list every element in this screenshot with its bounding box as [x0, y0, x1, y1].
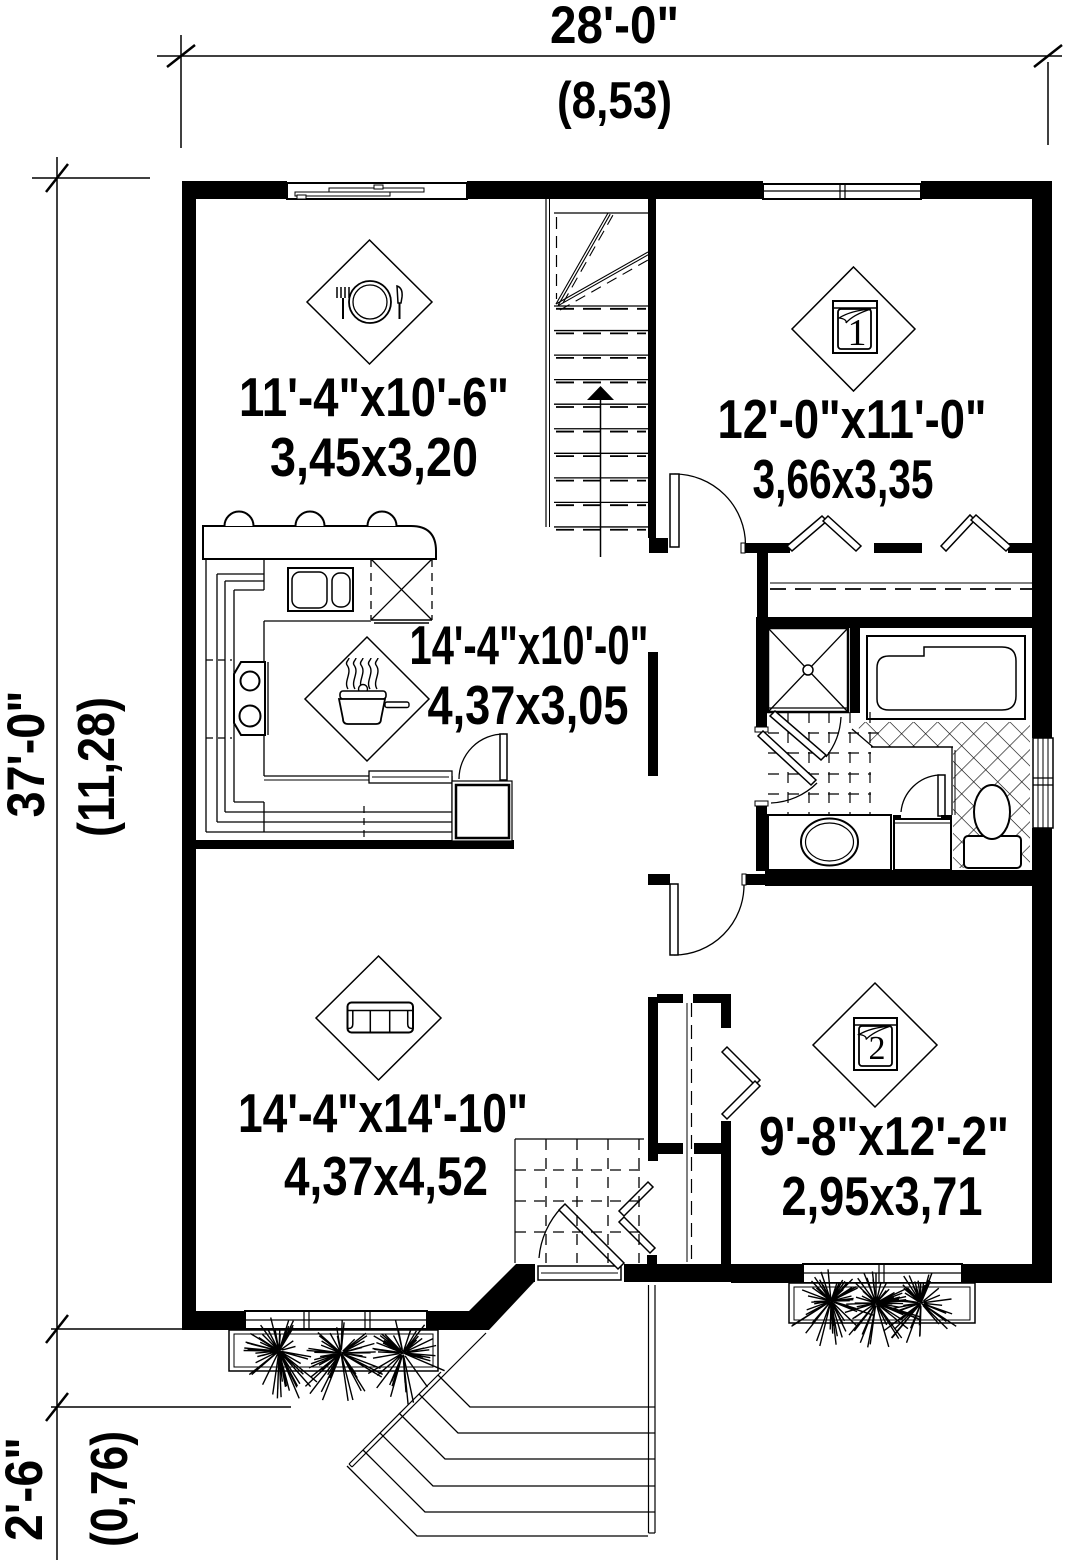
svg-text:(11,28): (11,28) [68, 697, 126, 837]
svg-text:(8,53): (8,53) [557, 72, 672, 130]
svg-text:14'-4"x10'-0": 14'-4"x10'-0" [410, 614, 649, 676]
svg-text:9'-8"x12'-2": 9'-8"x12'-2" [759, 1105, 1009, 1167]
svg-text:37'-0": 37'-0" [0, 691, 56, 818]
svg-text:(0,76): (0,76) [81, 1431, 139, 1547]
svg-text:14'-4"x14'-10": 14'-4"x14'-10" [238, 1082, 528, 1144]
svg-text:2'-6": 2'-6" [0, 1437, 54, 1541]
svg-text:4,37x3,05: 4,37x3,05 [428, 674, 629, 736]
svg-text:28'-0": 28'-0" [550, 0, 679, 55]
svg-text:3,45x3,20: 3,45x3,20 [270, 426, 478, 488]
svg-text:12'-0"x11'-0": 12'-0"x11'-0" [718, 388, 987, 450]
svg-text:2,95x3,71: 2,95x3,71 [782, 1165, 983, 1227]
svg-text:3,66x3,35: 3,66x3,35 [753, 448, 934, 510]
svg-text:4,37x4,52: 4,37x4,52 [284, 1145, 488, 1207]
svg-text:11'-4"x10'-6": 11'-4"x10'-6" [239, 366, 509, 428]
